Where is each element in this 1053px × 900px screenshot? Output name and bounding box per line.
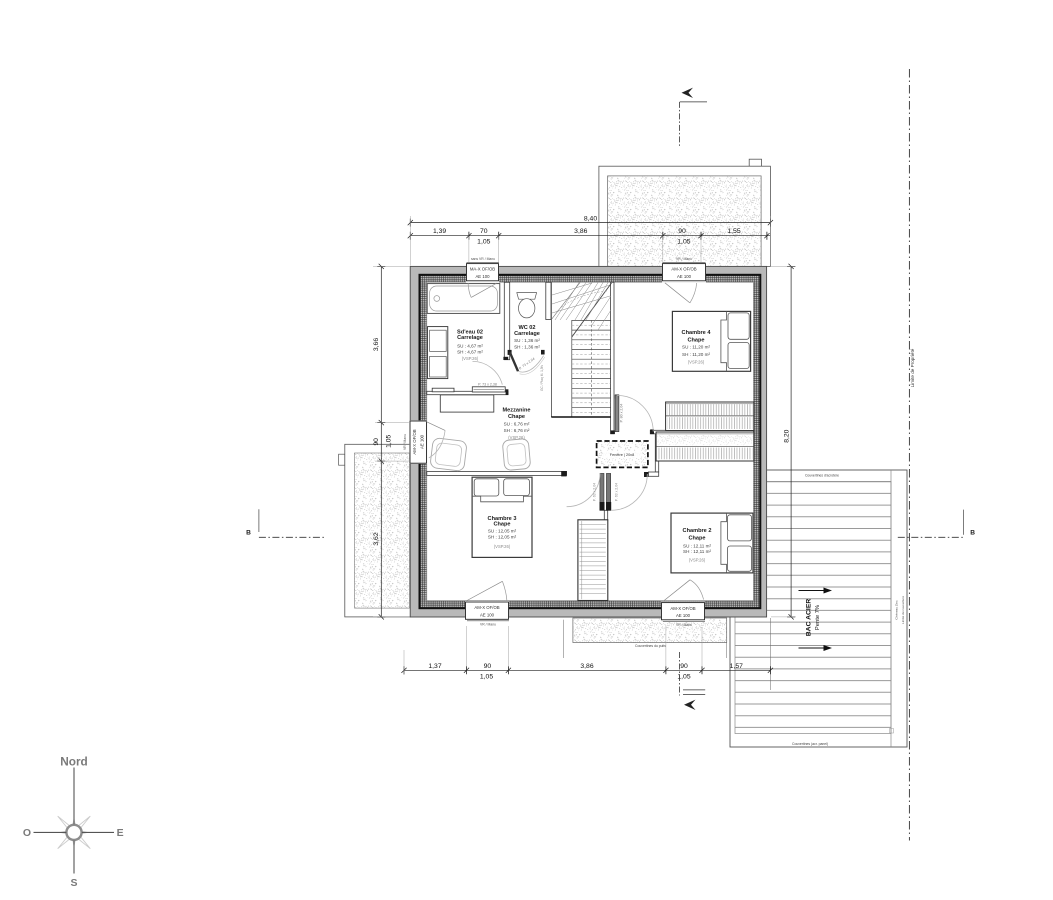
svg-text:SH : 12,11 m²: SH : 12,11 m² [683,549,711,554]
svg-text:AM-X OF/OB: AM-X OF/OB [474,605,499,610]
svg-text:90: 90 [680,663,688,670]
svg-text:1,05: 1,05 [480,673,493,680]
svg-text:SU : 12,05 m²: SU : 12,05 m² [488,529,517,534]
svg-text:MA-X OF/OB: MA-X OF/OB [470,267,495,272]
svg-text:B: B [246,530,251,537]
svg-text:(VSP.26): (VSP.26) [689,558,706,563]
svg-text:SU : 6,76 m²: SU : 6,76 m² [504,421,530,426]
svg-text:Nord: Nord [60,755,88,769]
svg-text:SU : 12,11 m²: SU : 12,11 m² [683,543,711,548]
svg-text:P. 73 x 2,38: P. 73 x 2,38 [478,382,497,386]
svg-text:Couvertines d'acrotère: Couvertines d'acrotère [805,474,839,478]
svg-text:SU : 11,20 m²: SU : 11,20 m² [682,345,710,350]
svg-text:SH : 4,67 m²: SH : 4,67 m² [457,349,483,354]
svg-text:Mezzanine: Mezzanine [503,407,531,413]
svg-text:Chape: Chape [687,337,704,343]
svg-text:70: 70 [480,228,488,235]
svg-text:Limite de couverture: Limite de couverture [901,596,905,624]
svg-text:AM-X OF/OB: AM-X OF/OB [670,606,695,611]
svg-text:S: S [70,877,77,889]
svg-text:1,55: 1,55 [727,228,740,235]
svg-text:3,62: 3,62 [373,532,380,545]
svg-text:O: O [23,827,31,839]
svg-text:Limite de Propriété: Limite de Propriété [910,348,915,387]
svg-text:SH : 12,05 m²: SH : 12,05 m² [488,535,517,540]
svg-text:SU : 1,36 m²: SU : 1,36 m² [514,338,540,343]
svg-text:1,39: 1,39 [433,228,446,235]
svg-text:Fenêtre | 20x8: Fenêtre | 20x8 [610,453,634,457]
svg-text:Couvertines (acr. panel): Couvertines (acr. panel) [792,742,828,746]
svg-text:E: E [117,827,124,839]
svg-text:AE 100: AE 100 [475,274,490,279]
svg-text:Carrelage: Carrelage [457,335,483,341]
svg-text:(VSP.26): (VSP.26) [508,435,525,440]
svg-text:B: B [970,530,975,537]
svg-text:VR / Manu: VR / Manu [403,434,407,450]
svg-text:GC / Plaq M. 1,5fs: GC / Plaq M. 1,5fs [540,365,544,391]
svg-text:(VSP.26): (VSP.26) [462,356,479,361]
svg-text:AM-X OF/OB: AM-X OF/OB [671,267,696,272]
svg-text:Chambre 4: Chambre 4 [682,330,712,336]
svg-text:90: 90 [373,438,380,446]
svg-text:(VSP.26): (VSP.26) [688,359,705,364]
svg-text:8,20: 8,20 [783,429,790,442]
svg-text:Chape: Chape [508,414,525,420]
svg-text:SH : 6,76 m²: SH : 6,76 m² [504,428,530,433]
svg-text:SH : 11,20 m²: SH : 11,20 m² [682,352,710,357]
svg-text:sans VR / Manu: sans VR / Manu [471,257,495,261]
svg-text:1,05: 1,05 [386,434,393,447]
svg-text:Couvertines du puits: Couvertines du puits [635,644,666,648]
svg-text:1,05: 1,05 [477,239,490,246]
svg-text:1,37: 1,37 [428,663,441,670]
svg-text:Carrelage: Carrelage [514,331,540,337]
svg-text:Chambre 2: Chambre 2 [683,528,712,534]
svg-text:BAC ACIER: BAC ACIER [806,599,813,637]
svg-text:3,66: 3,66 [373,338,380,351]
svg-text:Chape: Chape [493,522,510,528]
svg-text:1,05: 1,05 [677,239,690,246]
svg-text:VR / Manu: VR / Manu [676,257,692,261]
svg-text:VR / Manu: VR / Manu [480,623,496,627]
svg-text:AE 100: AE 100 [419,434,424,449]
svg-text:SH : 1,36 m²: SH : 1,36 m² [514,345,540,350]
svg-text:90: 90 [678,228,686,235]
svg-text:P. 63 x 2,04: P. 63 x 2,04 [593,483,597,501]
svg-text:90: 90 [484,663,492,670]
svg-text:P. 80 x 2,04: P. 80 x 2,04 [620,404,624,423]
svg-text:VR / Manu: VR / Manu [676,623,692,627]
svg-text:AE 100: AE 100 [480,612,495,617]
svg-text:Pente 7%: Pente 7% [815,605,821,630]
svg-text:3,86: 3,86 [580,663,593,670]
svg-text:Chéneau Zinc: Chéneau Zinc [895,600,899,620]
svg-text:8,40: 8,40 [584,215,597,222]
svg-text:(VSP.26): (VSP.26) [494,544,511,549]
svg-text:AE 100: AE 100 [676,613,691,618]
svg-text:AE 100: AE 100 [677,274,692,279]
svg-text:3,86: 3,86 [574,228,587,235]
svg-text:AM-X OF/OB: AM-X OF/OB [412,429,417,454]
svg-text:P. 63 x 2,04: P. 63 x 2,04 [614,483,618,501]
svg-text:SU : 4,67 m²: SU : 4,67 m² [457,344,483,349]
svg-text:1,57: 1,57 [730,663,743,670]
svg-text:Chape: Chape [688,535,705,541]
